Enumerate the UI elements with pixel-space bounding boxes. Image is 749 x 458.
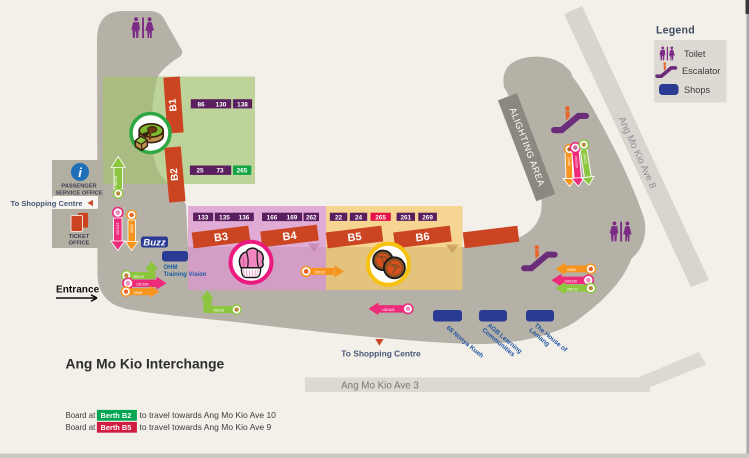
svg-text:1351626: 1351626 [382, 308, 395, 312]
svg-text:Board at: Board at [66, 423, 97, 432]
svg-text:22: 22 [335, 214, 343, 221]
svg-text:B5: B5 [347, 231, 362, 245]
svg-text:1351626: 1351626 [116, 223, 120, 236]
svg-text:Board at: Board at [66, 411, 97, 420]
svg-text:PASSENGER: PASSENGER [61, 184, 96, 190]
svg-text:1351626: 1351626 [565, 279, 578, 283]
svg-text:16966: 16966 [567, 268, 576, 272]
svg-text:136: 136 [239, 215, 250, 222]
svg-text:861301: 861301 [114, 175, 118, 186]
svg-text:B6: B6 [415, 231, 430, 245]
svg-text:169: 169 [287, 215, 298, 222]
svg-text:To Shopping Centre: To Shopping Centre [341, 348, 421, 358]
svg-text:265: 265 [375, 214, 386, 221]
svg-text:SERVICE OFFICE: SERVICE OFFICE [55, 190, 103, 196]
svg-text:24: 24 [355, 214, 363, 221]
svg-text:Legend: Legend [656, 25, 695, 37]
svg-text:261: 261 [400, 214, 411, 221]
svg-text:Ang Mo Kio Interchange: Ang Mo Kio Interchange [66, 356, 225, 371]
svg-text:Training Vision: Training Vision [164, 272, 207, 278]
svg-text:OHM: OHM [164, 265, 178, 271]
svg-text:16966: 16966 [130, 224, 134, 233]
svg-text:OFFICE: OFFICE [69, 241, 90, 247]
svg-text:135: 135 [219, 215, 230, 222]
svg-text:265: 265 [237, 168, 248, 175]
svg-text:B3: B3 [213, 231, 228, 245]
svg-text:Berth B5: Berth B5 [101, 423, 132, 432]
svg-text:Buzz: Buzz [143, 237, 166, 248]
svg-text:Berth B2: Berth B2 [101, 411, 132, 420]
svg-text:Ang Mo Kio Ave 3: Ang Mo Kio Ave 3 [341, 380, 419, 391]
svg-text:1351626: 1351626 [136, 282, 149, 286]
svg-text:Entrance: Entrance [56, 285, 100, 296]
svg-text:133: 133 [198, 215, 209, 222]
svg-text:265123: 265123 [133, 275, 144, 279]
svg-text:to travel towards Ang Mo Kio A: to travel towards Ang Mo Kio Ave 10 [140, 410, 277, 420]
svg-text:265123: 265123 [214, 309, 225, 313]
svg-text:Escalator: Escalator [682, 66, 720, 76]
svg-text:B4: B4 [282, 230, 298, 244]
svg-text:16966: 16966 [567, 157, 571, 166]
svg-text:265123: 265123 [567, 287, 578, 291]
svg-text:To Shopping Centre: To Shopping Centre [11, 199, 83, 208]
svg-text:TICKET: TICKET [69, 234, 90, 240]
svg-text:to travel towards Ang Mo Kio A: to travel towards Ang Mo Kio Ave 9 [140, 422, 272, 432]
svg-text:25: 25 [196, 168, 204, 175]
svg-text:262: 262 [306, 215, 317, 222]
svg-text:Shops: Shops [684, 85, 710, 95]
svg-text:165123: 165123 [315, 271, 326, 275]
svg-text:73: 73 [216, 168, 224, 175]
svg-text:16966: 16966 [134, 291, 143, 295]
svg-text:B2: B2 [169, 167, 181, 181]
svg-text:B1: B1 [168, 98, 180, 112]
svg-text:130: 130 [216, 101, 227, 108]
svg-text:Toilet: Toilet [684, 49, 706, 59]
svg-text:166: 166 [267, 215, 278, 222]
svg-text:i: i [78, 165, 82, 180]
svg-text:86: 86 [197, 101, 205, 108]
svg-text:138: 138 [237, 101, 248, 108]
svg-text:269: 269 [422, 214, 433, 221]
